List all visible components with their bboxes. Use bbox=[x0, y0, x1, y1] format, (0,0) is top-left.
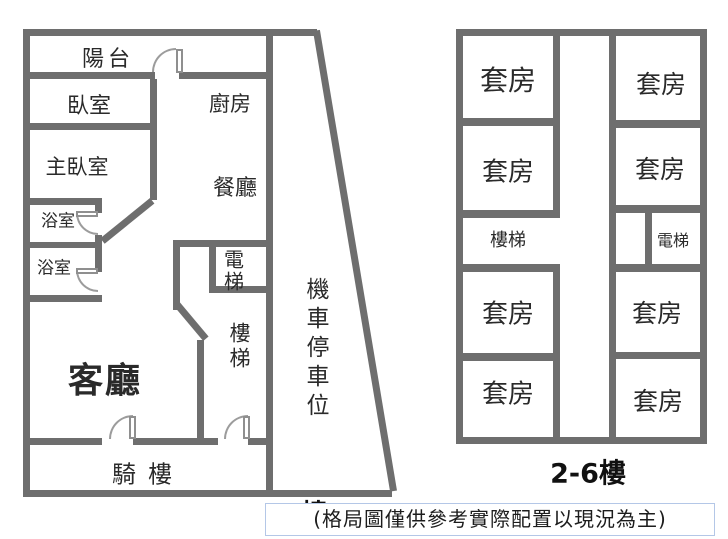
wall bbox=[553, 36, 560, 218]
door-arc bbox=[152, 48, 176, 72]
wall bbox=[150, 79, 157, 200]
wall bbox=[266, 36, 273, 497]
wall-diagonal bbox=[100, 198, 154, 244]
room-label-stairs-upper: 樓梯 bbox=[490, 226, 526, 252]
wall bbox=[553, 264, 560, 437]
wall bbox=[609, 352, 707, 359]
wall bbox=[23, 242, 102, 248]
wall bbox=[23, 490, 392, 497]
floorplan-diagram: 陽台 臥室 主臥室 浴室 浴室 廚房 餐廳 客廳 電梯 樓梯 機車停車位 騎樓 … bbox=[0, 0, 728, 539]
wall bbox=[133, 438, 218, 445]
room-label-master-bedroom: 主臥室 bbox=[46, 151, 109, 181]
room-label-stairs-f1: 樓梯 bbox=[224, 322, 254, 372]
suite-label-8: 套房 bbox=[633, 382, 683, 418]
wall bbox=[456, 29, 463, 444]
room-label-moto-parking: 機車停車位 bbox=[298, 277, 332, 422]
door-leaf bbox=[129, 416, 136, 439]
wall bbox=[23, 123, 157, 130]
wall-slanted bbox=[313, 30, 397, 492]
door-leaf bbox=[76, 211, 98, 217]
room-label-elevator-upper: 電梯 bbox=[657, 227, 689, 251]
suite-label-2: 套房 bbox=[482, 152, 534, 189]
door-leaf bbox=[176, 49, 183, 73]
suite-label-1: 套房 bbox=[480, 59, 536, 99]
room-label-arcade: 騎樓 bbox=[112, 455, 184, 490]
wall bbox=[30, 72, 155, 79]
room-label-elevator-f1: 電梯 bbox=[219, 249, 248, 293]
wall bbox=[609, 36, 616, 272]
wall bbox=[173, 240, 180, 310]
wall bbox=[179, 72, 266, 79]
suite-label-6: 套房 bbox=[482, 374, 534, 411]
room-label-balcony: 陽台 bbox=[82, 41, 134, 73]
room-label-bathroom-2: 浴室 bbox=[37, 254, 71, 279]
wall bbox=[609, 205, 707, 213]
room-label-dining: 餐廳 bbox=[213, 170, 257, 202]
wall bbox=[459, 210, 560, 218]
wall bbox=[23, 295, 102, 302]
wall bbox=[23, 29, 317, 36]
wall bbox=[459, 264, 560, 272]
suite-label-3: 套房 bbox=[636, 65, 686, 101]
wall bbox=[456, 29, 707, 36]
wall bbox=[23, 438, 102, 445]
wall bbox=[609, 264, 707, 272]
room-label-kitchen: 廚房 bbox=[209, 88, 251, 118]
wall bbox=[456, 437, 707, 444]
disclaimer-caption: (格局圖僅供參考實際配置以現況為主) bbox=[265, 503, 715, 536]
wall bbox=[248, 438, 266, 445]
wall bbox=[197, 340, 204, 445]
wall bbox=[459, 353, 560, 361]
wall bbox=[95, 235, 102, 248]
wall bbox=[609, 120, 707, 128]
floor-label-2-6f: 2-6樓 bbox=[550, 452, 626, 491]
door-leaf bbox=[76, 268, 98, 274]
suite-label-7: 套房 bbox=[632, 294, 682, 330]
room-label-living: 客廳 bbox=[68, 353, 142, 404]
wall bbox=[23, 29, 30, 497]
wall bbox=[645, 205, 652, 272]
wall-diagonal bbox=[173, 301, 209, 342]
room-label-bedroom: 臥室 bbox=[67, 88, 111, 120]
wall bbox=[459, 118, 560, 126]
suite-label-4: 套房 bbox=[635, 150, 685, 186]
door-leaf bbox=[243, 416, 250, 439]
room-label-bathroom-1: 浴室 bbox=[41, 207, 75, 232]
suite-label-5: 套房 bbox=[482, 294, 534, 331]
wall bbox=[700, 29, 707, 444]
wall bbox=[173, 240, 266, 247]
wall bbox=[23, 198, 102, 205]
